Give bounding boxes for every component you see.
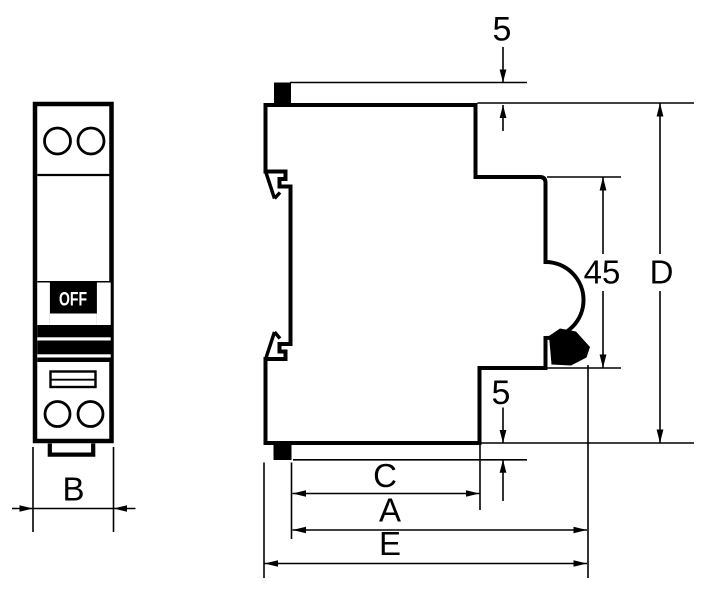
side-view: 5 45 D 5: [264, 11, 694, 579]
arrow-b-right: [114, 505, 128, 512]
toggle-slot-right: [97, 283, 111, 326]
din-slot-hooks: [266, 172, 280, 359]
terminal-screw-top-right: [78, 128, 104, 154]
toggle-slot-left: [37, 283, 50, 326]
dim-label-5-bottom: 5: [492, 374, 511, 412]
side-toggle-handle: [549, 329, 590, 366]
terminal-screw-bottom-left: [45, 402, 70, 427]
drawing-canvas: OFF B: [0, 0, 714, 614]
terminal-clamp-top: [274, 83, 291, 105]
terminal-screw-bottom-right: [78, 402, 103, 427]
dim-label-a: A: [379, 492, 401, 529]
dim-label-b: B: [62, 471, 84, 508]
dim-label-c: C: [373, 457, 397, 494]
dimension-e: E: [265, 525, 588, 567]
side-body-outline: [266, 105, 584, 443]
dim-label-d: D: [650, 254, 674, 291]
dim-label-e: E: [379, 525, 401, 562]
dimension-45: 45: [584, 177, 621, 368]
breaker-dimension-drawing: OFF B: [0, 0, 714, 614]
dim-label-45: 45: [584, 254, 621, 291]
toggle-off-label: OFF: [59, 290, 87, 311]
band-stripe-2: [37, 354, 110, 357]
dimension-d: D: [650, 103, 674, 443]
front-body-outline: [35, 104, 112, 441]
din-clip-tab: [50, 444, 93, 455]
dimension-a: A: [293, 492, 588, 534]
dimension-5-bottom: 5: [492, 374, 511, 501]
front-view: OFF B: [12, 104, 136, 532]
dim-label-5-top: 5: [493, 11, 512, 49]
terminal-clamp-bottom: [274, 443, 292, 460]
band-stripe-1: [37, 337, 110, 340]
terminal-screw-top-left: [45, 128, 71, 154]
toggle-recess: [50, 314, 97, 326]
arrow-b-left: [20, 505, 34, 512]
dimension-5-top: 5: [493, 11, 512, 132]
